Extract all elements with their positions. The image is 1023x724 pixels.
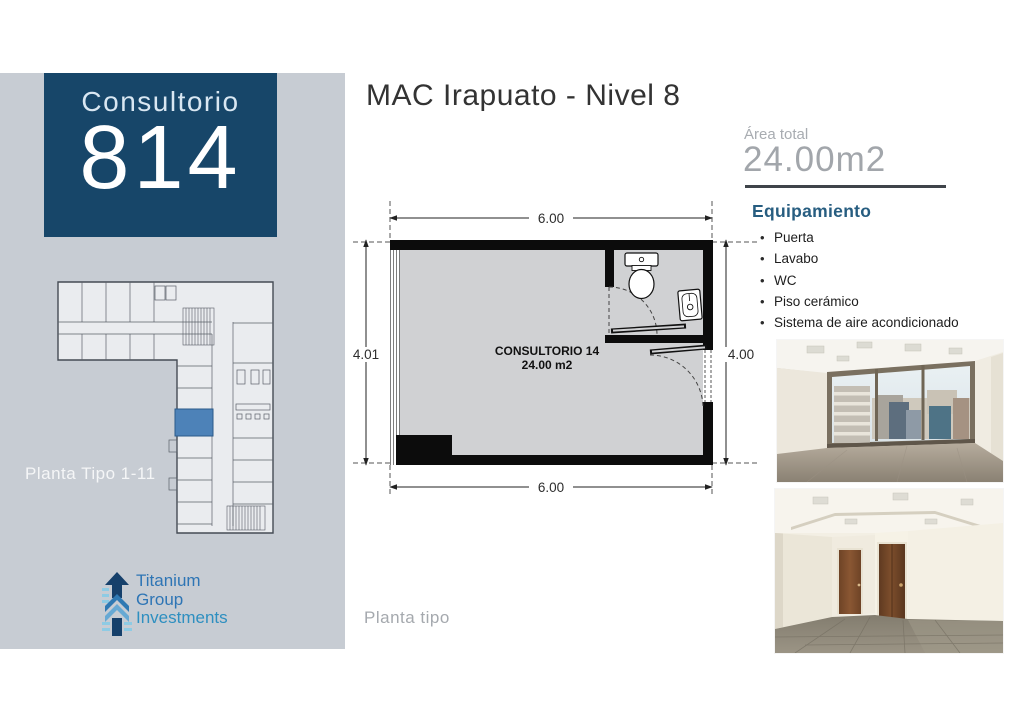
logo-line-group: Group xyxy=(136,591,228,610)
logo-shaft xyxy=(112,618,122,636)
titanium-group-logo: Titanium Group Investments xyxy=(102,572,228,636)
sink-icon xyxy=(678,289,703,321)
plan-caption: Planta tipo xyxy=(364,608,450,628)
dim-bottom-label: 6.00 xyxy=(538,480,564,495)
wood-door-1 xyxy=(837,548,863,614)
mini-plan-caption: Planta Tipo 1-11 xyxy=(25,464,156,484)
section-divider xyxy=(745,185,946,188)
page-title: MAC Irapuato - Nivel 8 xyxy=(366,79,680,113)
equipment-item: Piso cerámico xyxy=(757,291,959,312)
equipment-item: WC xyxy=(757,270,959,291)
floor-plan-svg: 6.00 6.00 4.01 4.00 xyxy=(345,195,765,505)
dim-left-label: 4.01 xyxy=(353,347,379,362)
builtin-ledge xyxy=(396,435,452,457)
wood-door-2 xyxy=(877,542,907,620)
equipment-title: Equipamiento xyxy=(752,201,871,222)
office-window-photo xyxy=(777,340,1003,482)
unit-card-number: 814 xyxy=(44,119,277,197)
window-wall-strip xyxy=(390,240,399,465)
equipment-item: Puerta xyxy=(757,227,959,248)
logo-line-titanium: Titanium xyxy=(136,572,228,591)
logo-line-investments: Investments xyxy=(136,609,228,628)
room-name-label: CONSULTORIO 14 xyxy=(495,344,600,358)
equipment-item: Sistema de aire acondicionado xyxy=(757,312,959,333)
bathroom-bottom-wall xyxy=(605,335,713,343)
office-doors-photo xyxy=(775,489,1003,653)
highlighted-unit-room xyxy=(175,409,213,436)
bathroom-partition-wall xyxy=(605,250,614,287)
room-area-label: 24.00 m2 xyxy=(522,358,573,372)
unit-card: Consultorio 814 xyxy=(44,73,277,237)
logo-text: Titanium Group Investments xyxy=(136,572,228,628)
dim-top-label: 6.00 xyxy=(538,211,564,226)
area-total-value: 24.00m2 xyxy=(743,140,886,180)
dim-right-label: 4.00 xyxy=(728,347,754,362)
titanium-logo-icon xyxy=(102,572,132,636)
mini-floor-plan-svg xyxy=(57,278,277,540)
building-outline xyxy=(58,282,273,533)
equipment-list: Puerta Lavabo WC Piso cerámico Sistema d… xyxy=(757,227,959,333)
equipment-item: Lavabo xyxy=(757,248,959,269)
